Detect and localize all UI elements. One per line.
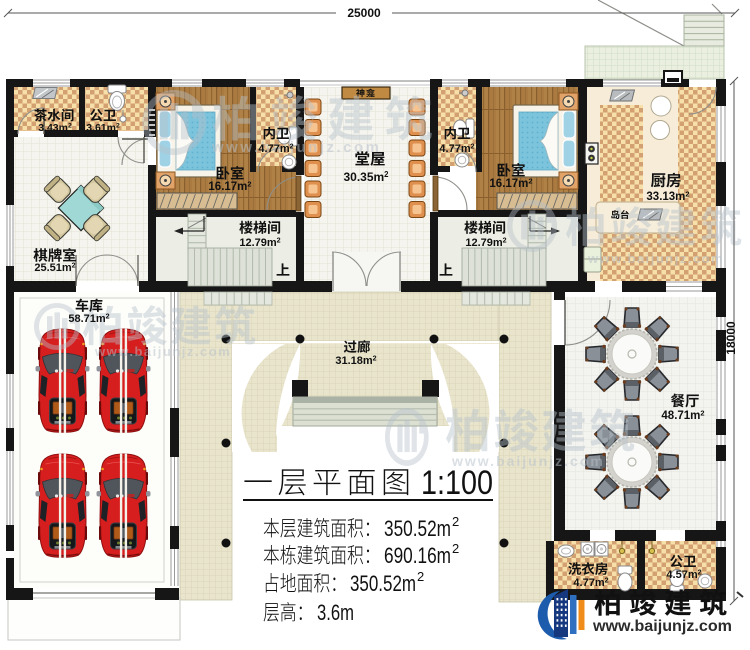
svg-text:12.79m2: 12.79m2: [465, 236, 506, 249]
svg-text:16.17m2: 16.17m2: [489, 176, 532, 190]
svg-text:1:100: 1:100: [421, 464, 493, 502]
svg-text:2: 2: [417, 569, 424, 584]
svg-text:www.baijunjz.com: www.baijunjz.com: [587, 251, 724, 266]
svg-text:690.16m: 690.16m: [384, 543, 451, 568]
svg-text:350.52m: 350.52m: [350, 571, 416, 596]
svg-text:4.77m2: 4.77m2: [439, 142, 474, 155]
svg-text:58.71m2: 58.71m2: [68, 312, 109, 325]
svg-text:4.77m2: 4.77m2: [258, 142, 293, 155]
svg-text:3.43m2: 3.43m2: [38, 122, 72, 134]
svg-text:31.18m2: 31.18m2: [335, 354, 376, 367]
svg-text:www.baijunjz.com: www.baijunjz.com: [592, 618, 732, 635]
svg-text:18000: 18000: [724, 321, 738, 355]
svg-text:33.13m2: 33.13m2: [646, 189, 689, 203]
svg-text:4.77m2: 4.77m2: [573, 576, 608, 589]
svg-text:3.61m2: 3.61m2: [86, 122, 120, 134]
svg-text:2: 2: [452, 514, 459, 529]
svg-text:2: 2: [452, 541, 459, 556]
svg-text:25.51m2: 25.51m2: [34, 261, 75, 274]
svg-text:25000: 25000: [347, 6, 381, 20]
svg-text:350.52m: 350.52m: [384, 516, 451, 541]
svg-text:3.6m: 3.6m: [317, 600, 354, 625]
svg-text:www.baijunjz.com: www.baijunjz.com: [94, 344, 231, 359]
svg-text:4.57m2: 4.57m2: [666, 568, 701, 581]
svg-text:48.71m2: 48.71m2: [661, 408, 704, 422]
svg-text:12.79m2: 12.79m2: [239, 236, 280, 249]
svg-text:16.17m2: 16.17m2: [208, 179, 251, 193]
svg-text:30.35m2: 30.35m2: [343, 170, 389, 184]
svg-text:www.baijunjz.com: www.baijunjz.com: [211, 139, 381, 156]
